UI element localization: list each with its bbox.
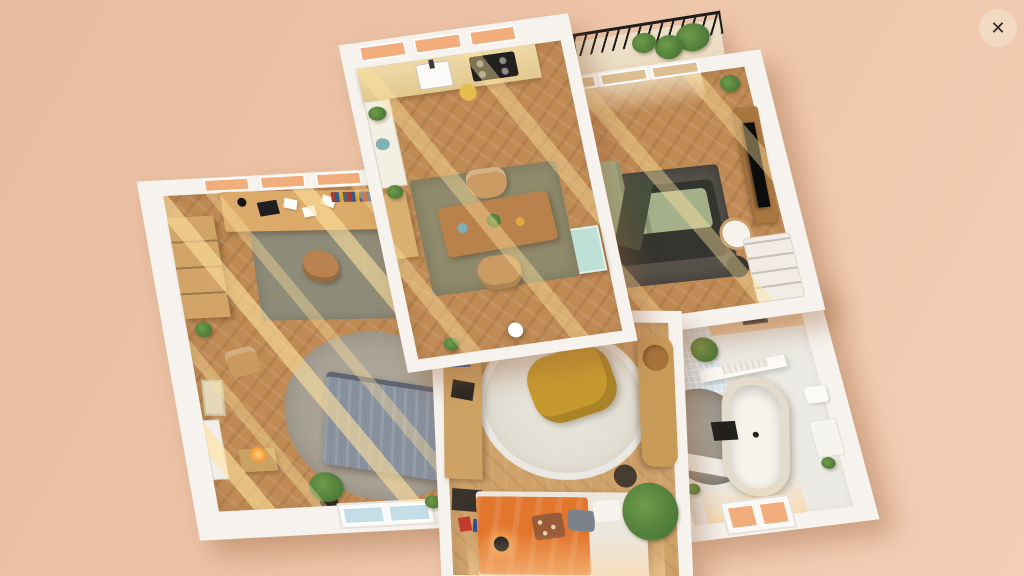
window-pane <box>387 503 432 523</box>
window-glow <box>467 533 665 576</box>
faucet-icon <box>753 431 759 438</box>
plant-icon <box>718 74 742 93</box>
artwork <box>458 516 472 531</box>
bath-caddy <box>711 421 739 441</box>
window-pane <box>358 40 408 62</box>
pendant-lamp <box>507 322 525 339</box>
window-pane <box>725 503 759 530</box>
bowl-icon <box>515 216 526 226</box>
window-pane <box>341 505 386 525</box>
window-pane <box>314 171 362 187</box>
bathroom-window <box>719 494 797 536</box>
stool <box>613 464 637 487</box>
sink <box>415 60 454 90</box>
desk-lamp-icon <box>237 198 247 207</box>
laptop-icon <box>451 379 475 401</box>
floorplan-viewer: ✕ <box>0 0 1024 576</box>
window-pane <box>757 500 791 527</box>
pillow <box>568 509 596 532</box>
paper-icon <box>302 205 318 217</box>
pillow <box>592 499 622 523</box>
plant-icon <box>820 456 837 469</box>
window-pane <box>259 174 307 190</box>
laptop-icon <box>257 200 280 217</box>
window-pane <box>203 177 251 193</box>
wood-cabinet <box>637 337 679 467</box>
window-pane <box>413 32 463 54</box>
dresser <box>742 232 806 303</box>
toilet <box>803 385 829 404</box>
close-icon: ✕ <box>990 18 1005 38</box>
bowl-icon <box>457 222 469 233</box>
paper-icon <box>283 198 297 211</box>
plant-icon <box>485 213 502 229</box>
window-bench <box>336 498 436 529</box>
close-button[interactable]: ✕ <box>979 9 1017 47</box>
side-chair <box>223 345 263 379</box>
artwork <box>201 380 226 416</box>
radiator <box>203 420 229 480</box>
plant-icon <box>194 322 214 338</box>
storage-unit <box>808 418 846 458</box>
plant-icon <box>442 337 460 352</box>
wardrobe <box>167 216 231 320</box>
window-pane <box>468 25 518 47</box>
